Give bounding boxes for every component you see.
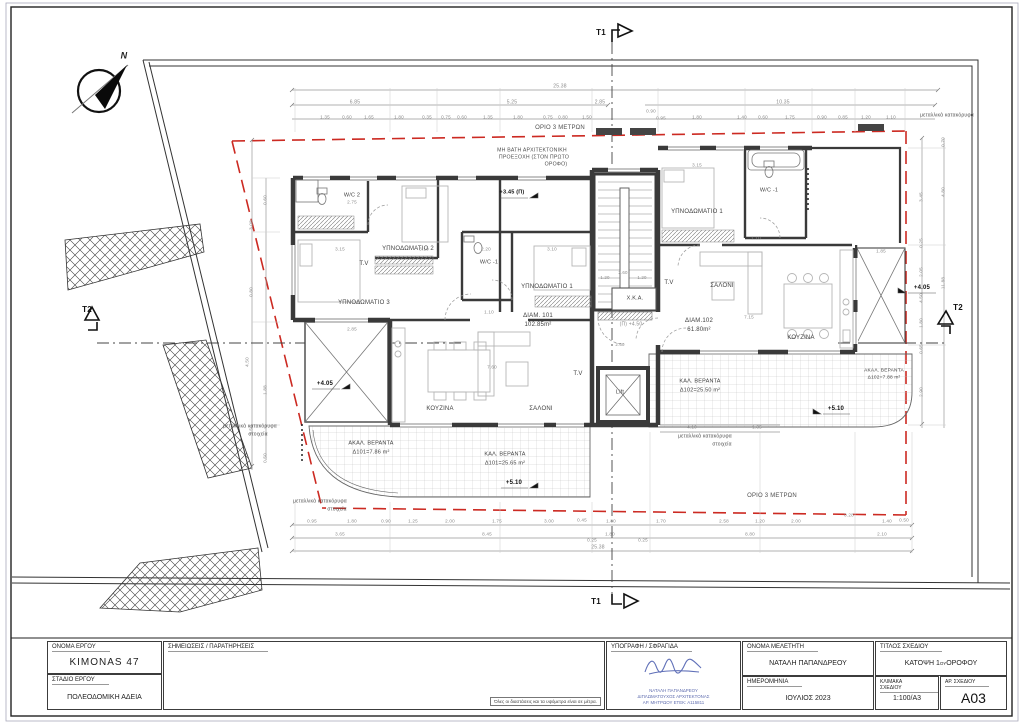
section-markers bbox=[85, 24, 953, 608]
project-stage: ΠΟΛΕΟΔΟΜΙΚΗ ΑΔΕΙΑ bbox=[48, 685, 161, 709]
date-label: ΗΜΕΡΟΜΗΝΙΑ bbox=[747, 679, 802, 687]
project-name-label: ΟΝΟΜΑ ΕΡΓΟΥ bbox=[52, 644, 110, 652]
pavement-hatch bbox=[65, 224, 262, 612]
staircase bbox=[594, 174, 656, 320]
stamp-text: ΝΑΤΑΛΗ ΠΑΠΑΝΔΡΕΟΥ ΔΙΠΛΩΜΑΤΟΥΧΟΣ ΑΡΧΙΤΕΚΤ… bbox=[607, 688, 740, 706]
drawing-title: ΚΑΤΟΨΗ 1ΟΥ ΟΡΟΦΟΥ bbox=[876, 652, 1006, 675]
walls-interior bbox=[293, 148, 855, 320]
wardrobes bbox=[298, 216, 734, 307]
door-swings bbox=[368, 205, 780, 352]
signature-label: ΥΠΟΓΡΑΦΗ / ΣΦΡΑΓΙΔΑ bbox=[611, 644, 692, 652]
drawing-title-part1: ΚΑΤΟΨΗ 1 bbox=[905, 660, 940, 667]
drawing-title-label: ΤΙΤΛΟΣ ΣΧΕΔΙΟΥ bbox=[880, 644, 942, 652]
drawing-title-box: ΤΙΤΛΟΣ ΣΧΕΔΙΟΥ ΚΑΤΟΨΗ 1ΟΥ ΟΡΟΦΟΥ bbox=[875, 641, 1007, 676]
project-name-box: ΟΝΟΜΑ ΕΡΓΟΥ KIMONAS 47 bbox=[47, 641, 162, 674]
notes-box: ΣΗΜΕΙΩΣΕΙΣ / ΠΑΡΑΤΗΡΗΣΕΙΣ Όλες οι διαστά… bbox=[163, 641, 605, 710]
notes-label: ΣΗΜΕΙΩΣΕΙΣ / ΠΑΡΑΤΗΡΗΣΕΙΣ bbox=[168, 644, 268, 652]
drawing-title-part2: ΟΡΟΦΟΥ bbox=[946, 660, 977, 667]
signature-box: ΥΠΟΓΡΑΦΗ / ΣΦΡΑΓΙΔΑ ΝΑΤΑΛΗ ΠΑΠΑΝΔΡΕΟΥ ΔΙ… bbox=[606, 641, 741, 710]
project-stage-label: ΣΤΑΔΙΟ ΕΡΓΟΥ bbox=[52, 677, 109, 685]
drawing-number-box: ΑΡ. ΣΧΕΔΙΟΥ A03 bbox=[940, 676, 1007, 710]
designer-name: ΝΑΤΑΛΗ ΠΑΠΑΝΔΡΕΟΥ bbox=[743, 652, 873, 675]
designer-box: ΟΝΟΜΑ ΜΕΛΕΤΗΤΗ ΝΑΤΑΛΗ ΠΑΠΑΝΔΡΕΟΥ bbox=[742, 641, 874, 676]
scale-value: 1:100/Α3 bbox=[876, 687, 938, 709]
drawing-number-label: ΑΡ. ΣΧΕΔΙΟΥ bbox=[945, 679, 989, 687]
stamp-reg: ΑΡ. ΜΗΤΡΩΟΥ ΕΤΕΚ: Α115811 bbox=[607, 700, 740, 706]
north-arrow-icon bbox=[72, 65, 128, 113]
scale-box: ΚΛΙΜΑΚΑ ΣΧΕΔΙΟΥ 1:100/Α3 bbox=[875, 676, 939, 710]
drawing-number: A03 bbox=[941, 687, 1006, 709]
date-value: ΙΟΥΛΙΟΣ 2023 bbox=[743, 687, 873, 709]
signature-icon bbox=[643, 656, 705, 678]
project-name: KIMONAS 47 bbox=[48, 652, 161, 673]
lift bbox=[598, 368, 648, 422]
drawing-sheet: W/C 2ΥΠΝΟΔΩΜΑΤΙΟ 2T.VW/C -1ΥΠΝΟΔΩΜΑΤΙΟ 3… bbox=[0, 0, 1024, 724]
date-box: ΗΜΕΡΟΜΗΝΙΑ ΙΟΥΛΙΟΣ 2023 bbox=[742, 676, 874, 710]
project-stage-box: ΣΤΑΔΙΟ ΕΡΓΟΥ ΠΟΛΕΟΔΟΜΙΚΗ ΑΔΕΙΑ bbox=[47, 674, 162, 710]
floor-plan-svg bbox=[0, 0, 1024, 724]
designer-label: ΟΝΟΜΑ ΜΕΛΕΤΗΤΗ bbox=[747, 644, 818, 652]
notes-footnote: Όλες οι διαστάσεις και τα υψόμετρα είναι… bbox=[490, 697, 601, 706]
